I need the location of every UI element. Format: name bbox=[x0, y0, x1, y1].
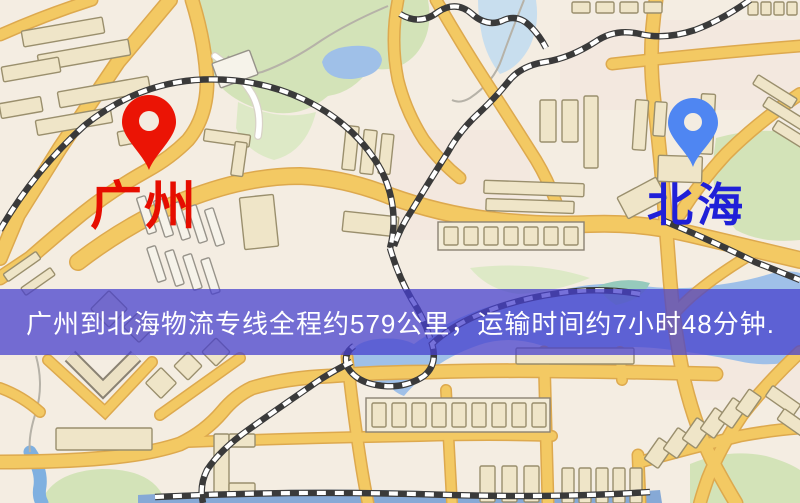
building bbox=[486, 198, 574, 213]
building bbox=[596, 2, 614, 13]
building bbox=[761, 2, 771, 15]
building bbox=[613, 468, 625, 503]
building bbox=[562, 100, 578, 142]
building bbox=[540, 100, 556, 142]
building bbox=[484, 180, 584, 196]
building bbox=[572, 2, 590, 13]
map-screenshot: 广州 北海 广州到北海物流专线全程约579公里，运输时间约7小时48分钟. bbox=[0, 0, 800, 503]
route-info-banner: 广州到北海物流专线全程约579公里，运输时间约7小时48分钟. bbox=[0, 289, 800, 355]
building bbox=[392, 403, 406, 427]
building bbox=[524, 227, 538, 245]
destination-label: 北海 bbox=[647, 178, 747, 232]
building bbox=[464, 227, 478, 245]
building bbox=[239, 194, 278, 249]
building bbox=[56, 428, 152, 450]
building bbox=[653, 102, 667, 137]
building bbox=[532, 403, 546, 427]
building bbox=[774, 2, 784, 15]
building bbox=[472, 403, 486, 427]
building bbox=[444, 227, 458, 245]
building bbox=[484, 227, 498, 245]
building bbox=[630, 468, 642, 503]
map-canvas: 广州 北海 bbox=[0, 0, 800, 503]
building bbox=[452, 403, 466, 427]
building bbox=[620, 2, 638, 13]
building bbox=[412, 403, 426, 427]
building bbox=[504, 227, 518, 245]
route-info-text: 广州到北海物流专线全程约579公里，运输时间约7小时48分钟. bbox=[26, 304, 775, 341]
destination-pin-hole bbox=[684, 113, 702, 131]
building bbox=[492, 403, 506, 427]
building bbox=[544, 227, 558, 245]
building bbox=[432, 403, 446, 427]
building bbox=[787, 2, 797, 15]
building bbox=[632, 100, 648, 151]
building bbox=[584, 96, 598, 168]
building bbox=[512, 403, 526, 427]
origin-pin-hole bbox=[139, 111, 159, 131]
building bbox=[372, 403, 386, 427]
origin-label: 广州 bbox=[90, 176, 198, 237]
building bbox=[644, 2, 662, 13]
building bbox=[564, 227, 578, 245]
